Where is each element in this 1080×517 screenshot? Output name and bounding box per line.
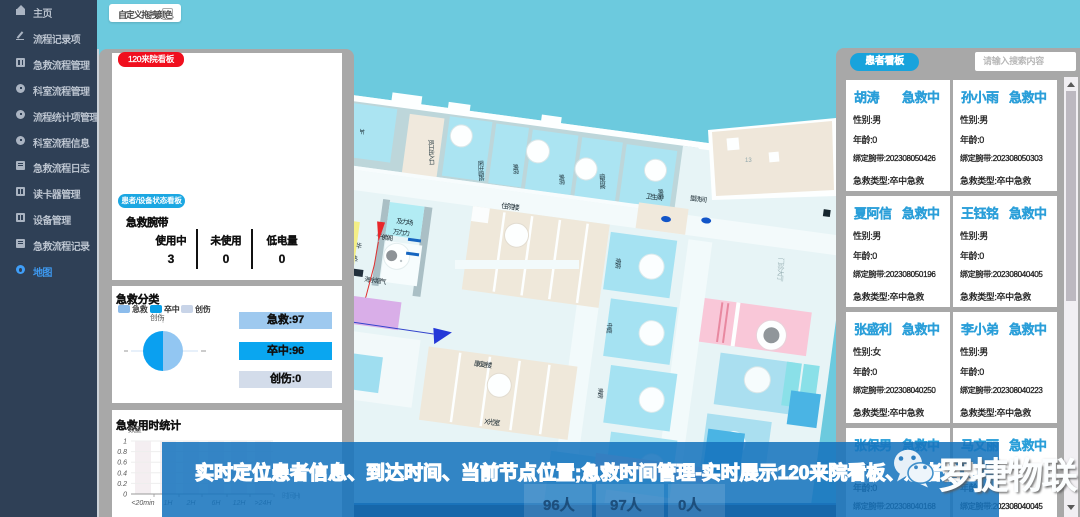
svg-text:13: 13 [745,158,752,164]
svg-text:<20min: <20min [131,500,154,507]
svg-text:创伤: 创伤 [150,312,164,322]
svg-text:0: 0 [123,492,127,499]
svg-text:0.4: 0.4 [117,470,127,477]
svg-text:数量: 数量 [128,424,142,434]
svg-text:0.2: 0.2 [117,481,127,488]
svg-text:1: 1 [123,439,127,446]
svg-text:0.6: 0.6 [117,460,127,467]
svg-text:0.8: 0.8 [117,449,127,456]
